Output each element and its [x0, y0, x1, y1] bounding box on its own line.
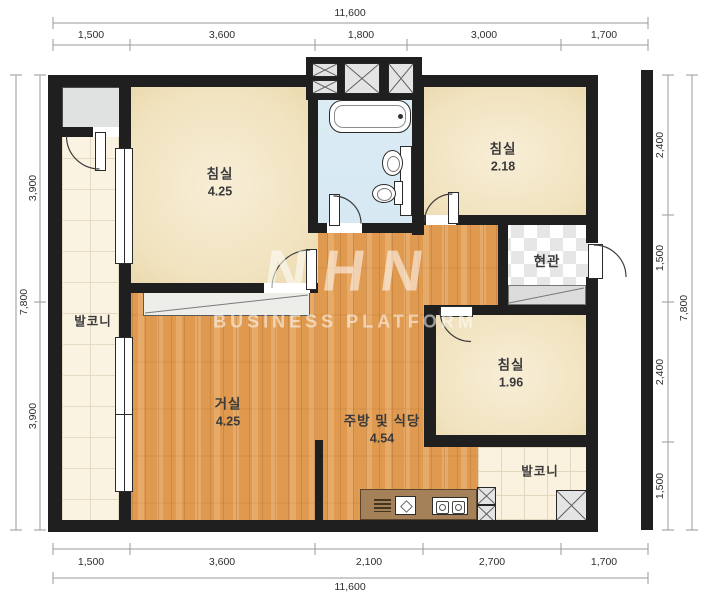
wall-outer-left: [48, 75, 62, 532]
dim-bottom-seg: 1,500: [56, 556, 126, 568]
label-kitchen-dining: 주방 및 식당4.54: [344, 412, 421, 447]
window-bedroom1: [115, 148, 133, 264]
dim-left-total: 7,800: [18, 289, 30, 315]
dim-left-seg: 3,900: [27, 175, 39, 201]
wall-outer-right-lower: [586, 277, 598, 532]
door-bedroom-2: [448, 192, 459, 224]
bathtub: [329, 100, 411, 133]
stove-icon: [432, 497, 468, 515]
wall-bedroom3-left: [424, 305, 436, 447]
wall-kitchen-stub: [315, 440, 323, 520]
door-opening: [264, 283, 310, 293]
faucet-icon: [398, 114, 403, 119]
dim-top-seg: 1,700: [569, 29, 639, 41]
wall-bathroom-bottom: [308, 223, 424, 233]
toilet-bowl: [372, 184, 396, 203]
label-living-room: 거실4.25: [215, 395, 242, 430]
kitchen-sink-icon: [395, 496, 416, 515]
wardrobe-strip: [143, 292, 310, 316]
ac-unit-box: [62, 87, 121, 129]
door-entrance: [588, 244, 603, 279]
shoe-cabinet: [508, 285, 586, 305]
wall-entrance-left: [498, 225, 508, 315]
shaft-duct: [344, 63, 380, 94]
dim-bottom-seg: 2,700: [457, 556, 527, 568]
shaft-duct: [312, 63, 338, 77]
wall-outer-bottom: [48, 520, 598, 532]
dim-right-seg: 1,500: [654, 473, 666, 499]
floor-plan: 침실4.25 침실2.18 침실1.96 거실4.25 주방 및 식당4.54 …: [0, 0, 712, 593]
dim-top-seg: 3,000: [449, 29, 519, 41]
label-bedroom-1: 침실4.25: [207, 165, 234, 200]
dim-right-total: 7,800: [678, 295, 690, 321]
window-living: [115, 337, 133, 492]
label-entrance: 현관: [534, 253, 561, 271]
dim-top-total: 11,600: [315, 7, 385, 19]
dim-top-seg: 1,800: [326, 29, 396, 41]
label-bedroom-2: 침실2.18: [490, 140, 517, 175]
wall-bathroom-left: [308, 87, 318, 233]
dish-rack-icon: [374, 499, 391, 512]
dim-right-seg: 2,400: [654, 132, 666, 158]
dim-bottom-seg: 3,600: [187, 556, 257, 568]
dim-right-seg: 1,500: [654, 245, 666, 271]
label-balcony-left: 발코니: [74, 314, 112, 331]
dim-bottom-seg: 2,100: [334, 556, 404, 568]
duct-box: [477, 487, 496, 505]
label-balcony-bottom: 발코니: [521, 464, 559, 481]
wall-bedroom3-bottom: [424, 435, 598, 447]
dim-left-seg: 3,900: [27, 403, 39, 429]
dim-right-seg: 2,400: [654, 359, 666, 385]
wall-boundary-bar: [641, 70, 653, 530]
shaft-duct: [312, 80, 338, 94]
duct-box: [556, 490, 587, 521]
door-bedroom-3: [440, 306, 473, 317]
door-balcony-left: [95, 132, 106, 171]
sink: [382, 150, 403, 176]
shaft-duct: [388, 63, 414, 94]
label-bedroom-3: 침실1.96: [498, 356, 525, 391]
dim-top-seg: 1,500: [56, 29, 126, 41]
door-bathroom: [329, 194, 340, 226]
door-bedroom-1: [306, 249, 317, 290]
dim-top-seg: 3,600: [187, 29, 257, 41]
wall-bathroom-right: [412, 87, 424, 235]
dim-bottom-seg: 1,700: [569, 556, 639, 568]
dim-bottom-total: 11,600: [315, 581, 385, 593]
